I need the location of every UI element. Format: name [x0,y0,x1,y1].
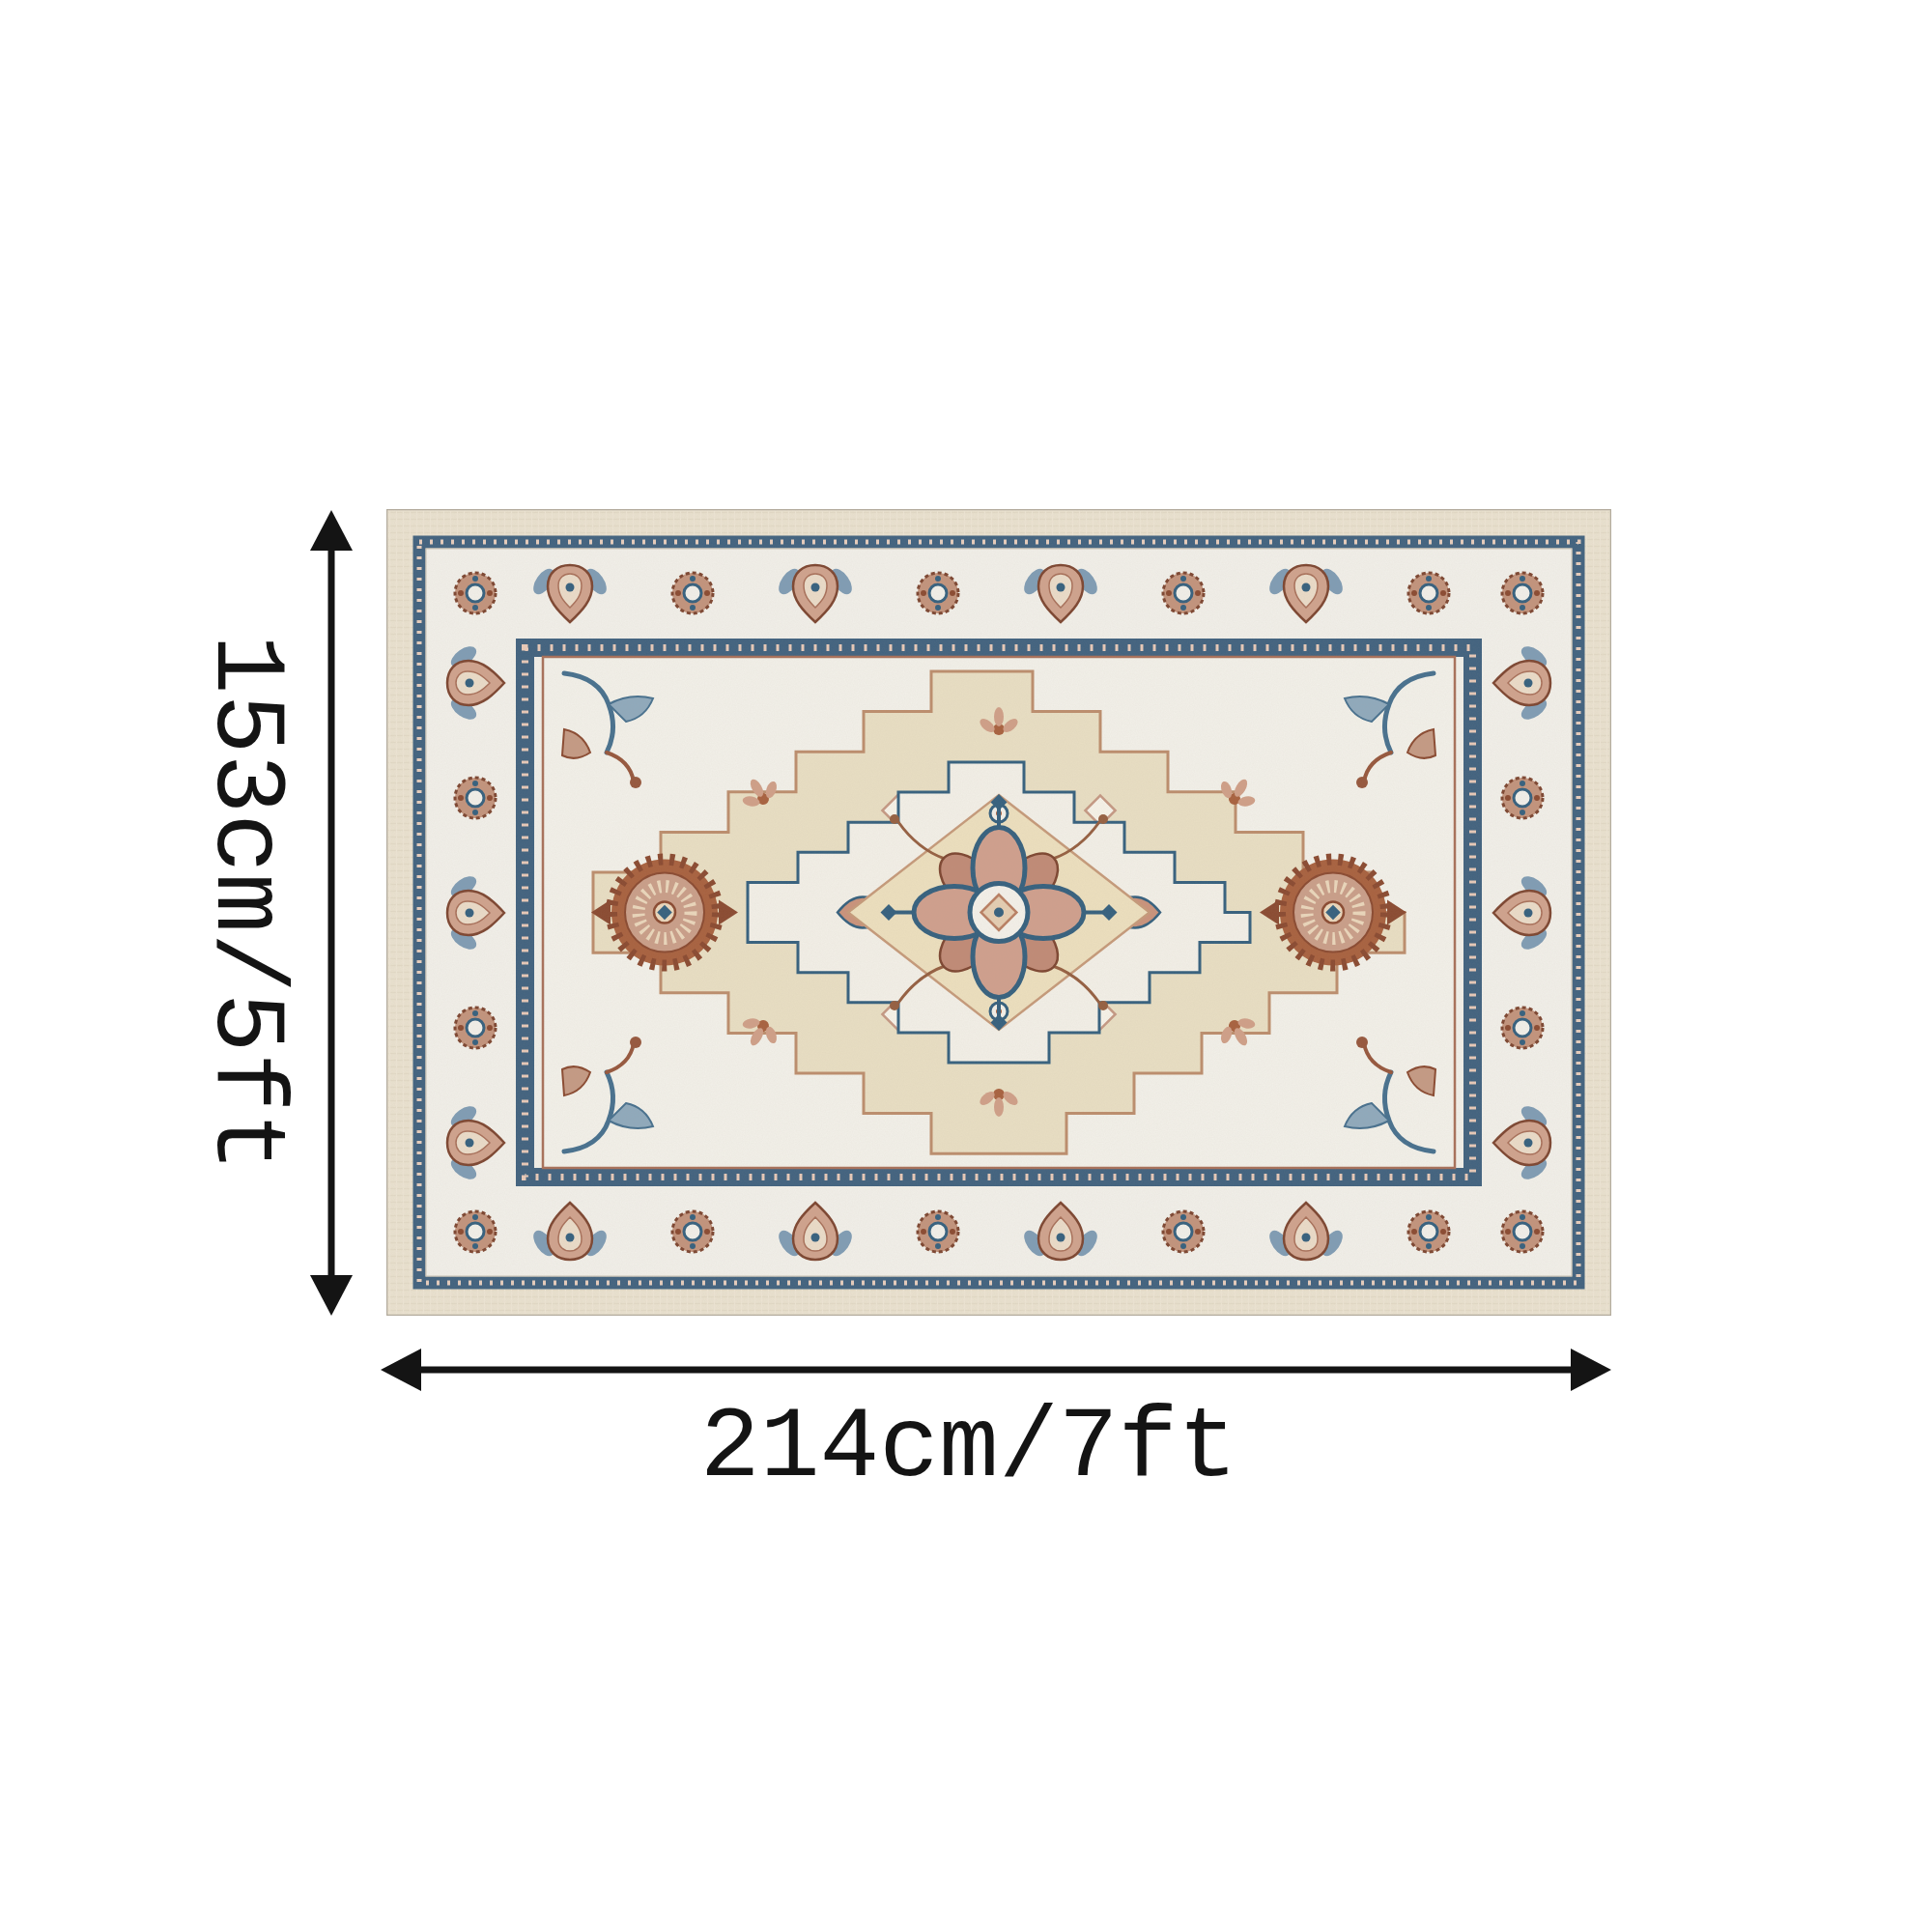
product-dimension-diagram: 153cm/5ft 214cm/7ft [0,0,1932,1932]
arrowhead-left-icon [381,1349,421,1391]
arrowhead-right-icon [1571,1349,1611,1391]
height-dimension-label: 153cm/5ft [195,635,295,1172]
arrowhead-down-icon [310,1275,353,1316]
vertical-dimension-arrow [302,506,360,1320]
rug-image [386,509,1611,1316]
rug-texture-overlay [386,509,1611,1316]
arrowhead-up-icon [310,510,353,551]
horizontal-dimension-arrow [377,1343,1615,1397]
rug-illustration [386,509,1611,1316]
width-dimension-label: 214cm/7ft [700,1399,1237,1498]
